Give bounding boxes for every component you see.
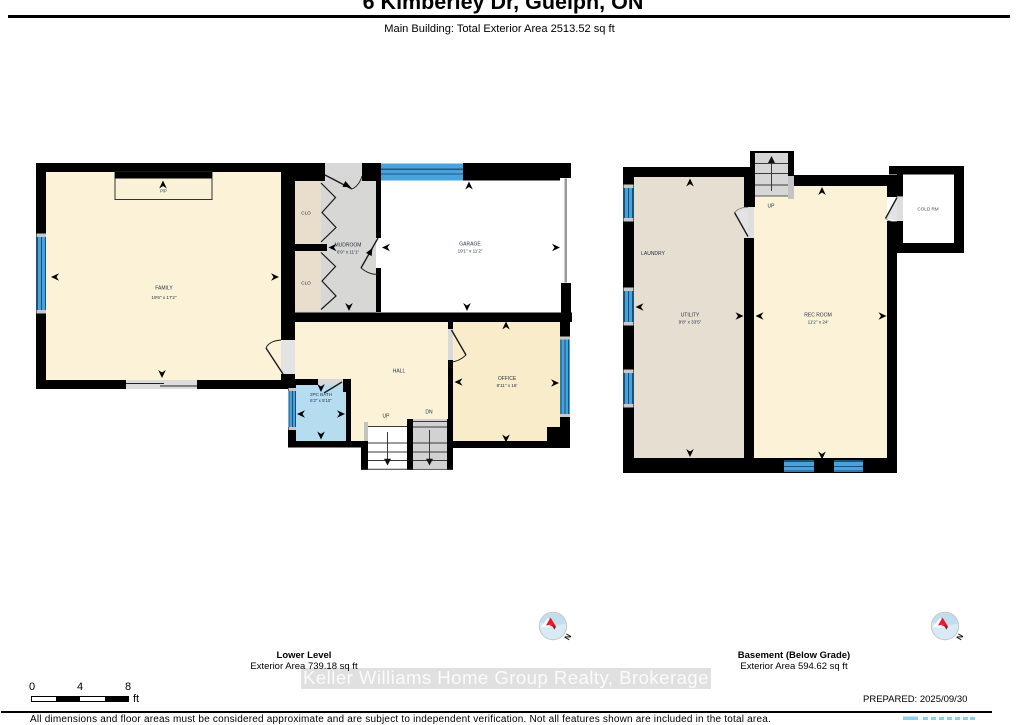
- svg-text:9'8" x 33'5": 9'8" x 33'5": [679, 320, 702, 325]
- svg-text:11'2" x 24': 11'2" x 24': [808, 320, 829, 325]
- svg-text:OFFICE: OFFICE: [498, 376, 517, 382]
- svg-text:CLO: CLO: [301, 211, 311, 216]
- svg-text:19'1" x 11'2": 19'1" x 11'2": [458, 249, 483, 254]
- svg-text:19'6" x 17'2": 19'6" x 17'2": [151, 295, 177, 300]
- svg-text:LAUNDRY: LAUNDRY: [641, 251, 665, 257]
- svg-text:FAMILY: FAMILY: [155, 286, 173, 292]
- svg-text:UP: UP: [383, 414, 391, 420]
- svg-text:UTILITY: UTILITY: [681, 313, 700, 319]
- svg-text:REC ROOM: REC ROOM: [804, 313, 832, 319]
- svg-text:CLO: CLO: [301, 281, 311, 286]
- svg-text:UP: UP: [768, 204, 776, 210]
- svg-text:MUDROOM: MUDROOM: [335, 243, 362, 249]
- svg-text:COLD RM: COLD RM: [917, 207, 938, 212]
- svg-text:8'11" x 16': 8'11" x 16': [497, 383, 518, 388]
- svg-text:GARAGE: GARAGE: [459, 242, 481, 248]
- svg-text:HALL: HALL: [393, 369, 406, 375]
- svg-text:6'9" x 11'1": 6'9" x 11'1": [337, 250, 360, 255]
- svg-text:6'2" x 5'10": 6'2" x 5'10": [310, 398, 332, 403]
- svg-text:2PC BATH: 2PC BATH: [310, 392, 332, 397]
- svg-text:DN: DN: [425, 410, 433, 416]
- svg-text:P/P: P/P: [160, 189, 167, 194]
